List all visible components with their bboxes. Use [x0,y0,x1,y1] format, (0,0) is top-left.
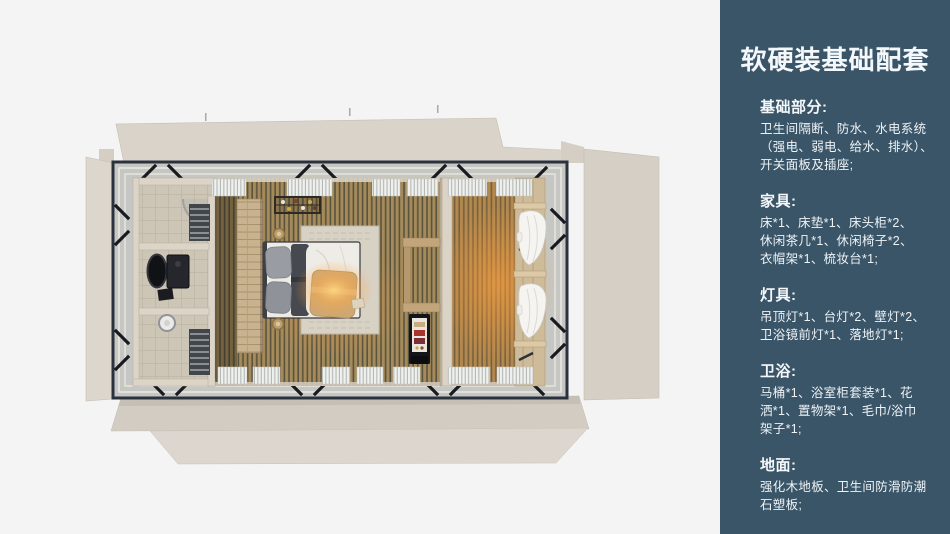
basket [274,229,285,240]
wardrobe-partition [237,199,263,353]
spec-line: 吊顶灯*1、台灯*2、壁灯*2、 [760,308,934,326]
toilet [159,315,175,331]
spec-line: 石塑板; [760,496,934,514]
bathroom [133,178,215,386]
vanity-mirror [148,255,167,288]
section-lighting: 灯具: 吊顶灯*1、台灯*2、壁灯*2、 卫浴镜前灯*1、落地灯*1; [760,288,934,344]
divider-wall [440,178,452,386]
spec-line: 卫生间隔断、防水、水电系统 [760,120,934,138]
spec-line: 强化木地板、卫生间防滑防潮 [760,478,934,496]
window-bench-band [514,178,546,386]
pillow [265,246,292,278]
lamp-glow [294,260,374,320]
pillow [265,281,292,313]
basket [273,319,284,330]
section-bathroom-heading: 卫浴: [760,364,934,380]
sidebar-title: 软硬装基础配套 [720,44,950,76]
spec-line: 床*1、床垫*1、床头柜*2、 [760,214,934,232]
slide: 软硬装基础配套 基础部分: 卫生间隔断、防水、水电系统 （强电、弱电、给水、排水… [0,0,950,534]
bed [263,242,374,320]
book [352,298,365,309]
spec-line: 洒*1、置物架*1、毛巾/浴巾 [760,402,934,420]
bar-shelf [275,197,320,213]
spec-line: 架子*1; [760,420,934,438]
spec-sidebar: 软硬装基础配套 基础部分: 卫生间隔断、防水、水电系统 （强电、弱电、给水、排水… [720,0,950,534]
spec-line: 马桶*1、浴室柜套装*1、花 [760,384,934,402]
section-basics: 基础部分: 卫生间隔断、防水、水电系统 （强电、弱电、给水、排水）、 开关面板及… [760,100,934,174]
section-basics-heading: 基础部分: [760,100,934,116]
spec-line: 休闲茶几*1、休闲椅子*2、 [760,232,934,250]
section-flooring-heading: 地面: [760,458,934,474]
section-lighting-heading: 灯具: [760,288,934,304]
roof-marks [205,105,439,121]
section-flooring: 地面: 强化木地板、卫生间防滑防潮 石塑板; [760,458,934,514]
section-bathroom: 卫浴: 马桶*1、浴室柜套装*1、花 洒*1、置物架*1、毛巾/浴巾 架子*1; [760,364,934,438]
spec-line: （强电、弱电、给水、排水）、 [760,138,934,156]
spec-line: 开关面板及插座; [760,156,934,174]
spec-line: 衣帽架*1、梳妆台*1; [760,250,934,268]
section-furniture-heading: 家具: [760,194,934,210]
spec-line: 卫浴镜前灯*1、落地灯*1; [760,326,934,344]
section-furniture: 家具: 床*1、床垫*1、床头柜*2、 休闲茶几*1、休闲椅子*2、 衣帽架*1… [760,194,934,268]
minibar [409,314,430,364]
floorplan-render [0,0,720,534]
